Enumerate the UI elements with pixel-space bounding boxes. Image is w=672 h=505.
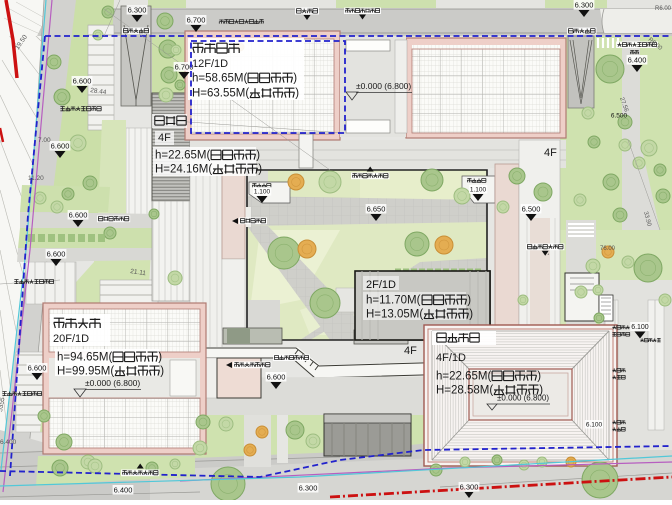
svg-text:6.400: 6.400 xyxy=(114,485,133,494)
svg-text:6.500: 6.500 xyxy=(611,113,628,120)
svg-text:11.20: 11.20 xyxy=(28,175,44,182)
svg-text:h=22.65M(: h=22.65M( xyxy=(155,150,210,162)
svg-text:H=13.05M(: H=13.05M( xyxy=(366,309,423,321)
svg-text:6.300: 6.300 xyxy=(575,0,594,9)
svg-text:): ) xyxy=(537,371,541,383)
svg-text:6.700: 6.700 xyxy=(187,15,206,24)
svg-text:6.600: 6.600 xyxy=(47,249,66,258)
svg-text:R6.00: R6.00 xyxy=(655,6,672,12)
svg-text:1.100: 1.100 xyxy=(470,187,487,194)
svg-text:): ) xyxy=(258,164,262,176)
svg-text:6.600: 6.600 xyxy=(28,363,47,372)
svg-text:): ) xyxy=(158,352,162,364)
svg-text:h=94.65M(: h=94.65M( xyxy=(57,352,112,364)
svg-text:H=28.58M(: H=28.58M( xyxy=(436,385,493,397)
svg-text:6.100: 6.100 xyxy=(631,324,649,331)
svg-text:h=58.65M(: h=58.65M( xyxy=(192,73,247,85)
svg-text:h=11.70M(: h=11.70M( xyxy=(366,295,421,307)
svg-text:6.300: 6.300 xyxy=(460,482,479,491)
svg-text:4F: 4F xyxy=(404,345,417,357)
svg-text:): ) xyxy=(160,366,164,378)
svg-text:): ) xyxy=(295,88,299,100)
svg-text:): ) xyxy=(293,73,297,85)
svg-text:±0.000 (6.800): ±0.000 (6.800) xyxy=(85,378,140,388)
svg-text:): ) xyxy=(469,309,473,321)
svg-text:1.100: 1.100 xyxy=(254,189,271,196)
svg-text:): ) xyxy=(467,295,471,307)
svg-text:2F/1D: 2F/1D xyxy=(366,279,396,291)
svg-text:H=63.55M(: H=63.55M( xyxy=(192,88,249,100)
svg-text:4F/1D: 4F/1D xyxy=(436,352,466,364)
svg-text:6.600: 6.600 xyxy=(69,210,88,219)
svg-text:±0.000 (6.800): ±0.000 (6.800) xyxy=(356,81,411,91)
svg-text:H=24.16M(: H=24.16M( xyxy=(155,164,212,176)
svg-text:4F: 4F xyxy=(544,147,557,159)
svg-text:20F/1D: 20F/1D xyxy=(53,333,89,345)
svg-text:6.400: 6.400 xyxy=(628,55,647,64)
svg-text:7.00: 7.00 xyxy=(38,137,51,144)
svg-text:6.600: 6.600 xyxy=(73,76,92,85)
svg-text:6.300: 6.300 xyxy=(128,5,147,14)
svg-text:H=99.95M(: H=99.95M( xyxy=(57,366,114,378)
svg-text:6.600: 6.600 xyxy=(51,141,70,150)
svg-text:76.00: 76.00 xyxy=(600,246,616,252)
svg-text:4F: 4F xyxy=(158,132,171,144)
svg-text:6.300: 6.300 xyxy=(299,483,318,492)
svg-text:12F/1D: 12F/1D xyxy=(192,58,228,70)
svg-text:6.500: 6.500 xyxy=(522,204,541,213)
svg-text:): ) xyxy=(256,150,260,162)
svg-text:6.600: 6.600 xyxy=(267,372,286,381)
svg-text:): ) xyxy=(539,385,543,397)
svg-text:6.400: 6.400 xyxy=(0,439,17,446)
svg-text:h=22.65M(: h=22.65M( xyxy=(436,371,491,383)
svg-text:6.650: 6.650 xyxy=(367,204,386,213)
svg-text:6.100: 6.100 xyxy=(586,422,603,429)
